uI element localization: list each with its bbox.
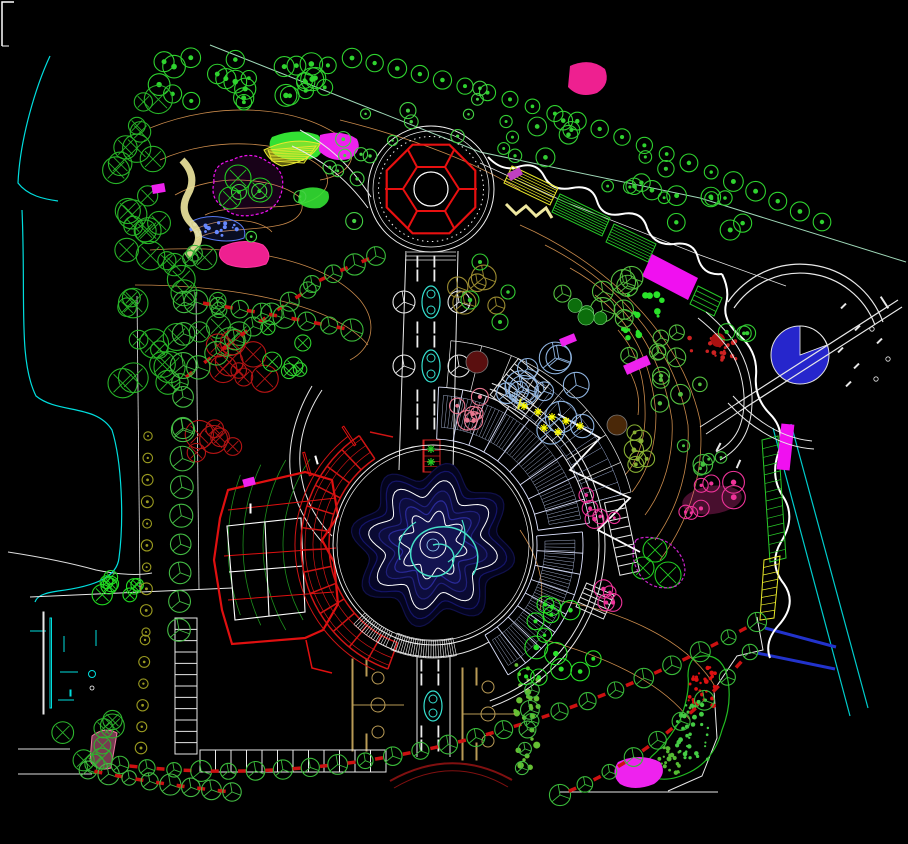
layer-octagon-plaza [385, 145, 477, 234]
layer-sw-building [43, 612, 96, 714]
cad-viewport[interactable] [0, 0, 908, 844]
site-plan-drawing [0, 0, 908, 844]
layer-entrance [700, 264, 902, 468]
layer-boundary [2, 2, 906, 792]
